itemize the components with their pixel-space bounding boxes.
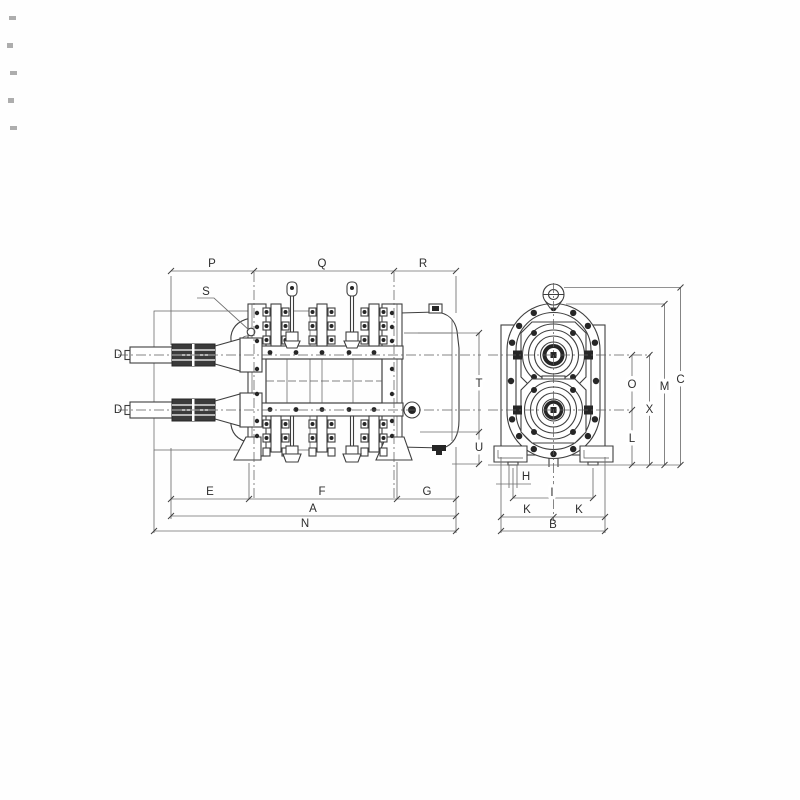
stud-clusters-bottom	[263, 416, 387, 456]
dim-label-f: F	[318, 486, 325, 498]
side-view	[118, 272, 481, 499]
dim-label-k-left: K	[523, 504, 531, 516]
dim-label-x: X	[646, 404, 654, 416]
dim-label-e: E	[206, 486, 214, 498]
dim-label-o: O	[628, 379, 637, 391]
dim-label-c: C	[676, 374, 684, 386]
dim-label-m: M	[660, 381, 670, 393]
drawing-page: P Q R S D D T U E F G A	[0, 0, 800, 800]
dim-label-a: A	[309, 503, 317, 515]
dim-label-r: R	[419, 258, 427, 270]
bearing-assembly-bottom	[513, 379, 593, 443]
dim-label-q: Q	[318, 258, 327, 270]
drain-fitting	[432, 445, 446, 451]
dim-label-d-top: D	[114, 349, 122, 361]
dim-label-s: S	[202, 286, 210, 298]
dim-label-p: P	[208, 258, 216, 270]
dim-label-i: I	[550, 487, 553, 499]
dim-label-h: H	[522, 471, 530, 483]
left-foot	[234, 437, 261, 460]
top-rail	[250, 346, 403, 359]
dim-label-g: G	[423, 486, 432, 498]
dim-label-t: T	[475, 378, 482, 390]
technical-drawing: P Q R S D D T U E F G A	[0, 0, 800, 800]
dim-label-k-right: K	[575, 504, 583, 516]
dim-label-l: L	[629, 433, 636, 445]
dim-label-n: N	[301, 518, 309, 530]
scan-artifacts	[7, 16, 17, 130]
dim-label-b: B	[549, 519, 557, 531]
stud-clusters-top	[263, 304, 387, 346]
dim-label-d-bottom: D	[114, 404, 122, 416]
dim-label-u: U	[475, 442, 483, 454]
bottom-rail	[250, 403, 403, 416]
end-cover	[400, 312, 459, 448]
